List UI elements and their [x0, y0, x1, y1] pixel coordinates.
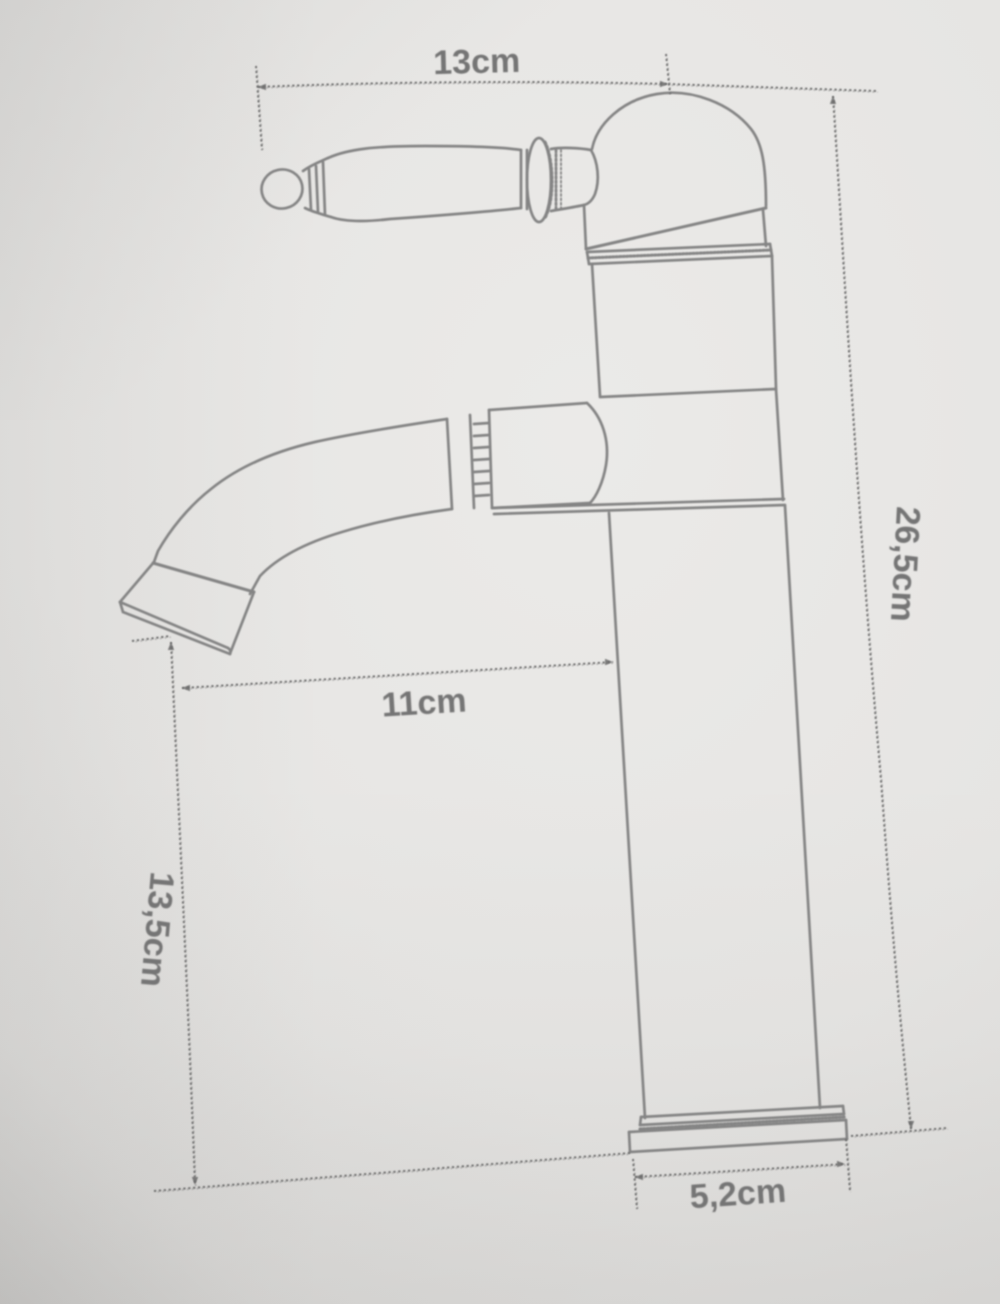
svg-text:13cm: 13cm	[433, 42, 521, 82]
svg-text:11cm: 11cm	[380, 681, 467, 724]
svg-text:5,2cm: 5,2cm	[688, 1172, 787, 1217]
svg-text:26,5cm: 26,5cm	[883, 506, 927, 623]
